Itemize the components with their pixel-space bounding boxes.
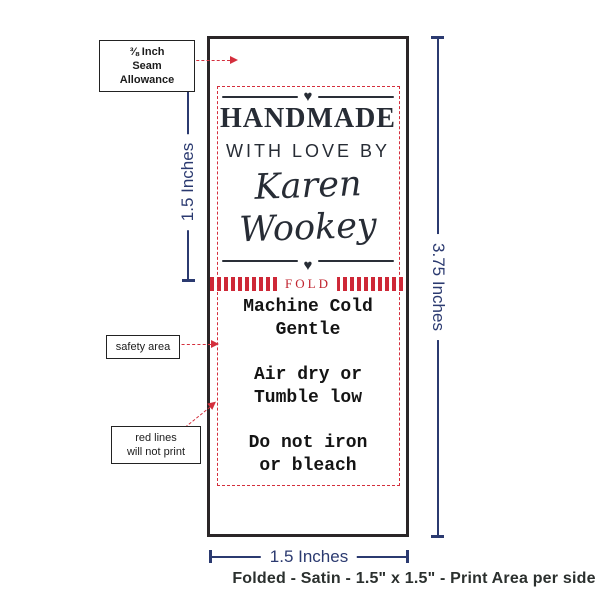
seam-allowance-note: ⅜ Inch Seam Allowance	[99, 40, 195, 92]
red-lines-line1: red lines	[117, 431, 195, 445]
label-mockup-diagram: FOLD ♥ HANDMADE WITH LOVE BY Karen Wooke…	[0, 0, 600, 600]
left-dimension-label: 1.5 Inches	[176, 134, 200, 230]
bottom-dimension-cap-right	[406, 550, 409, 563]
safety-area-label: safety area	[112, 340, 174, 354]
arrowhead-icon	[211, 340, 219, 348]
fold-label: FOLD	[279, 275, 337, 293]
bottom-dimension-cap-left	[209, 550, 212, 563]
product-caption: Folded - Satin - 1.5" x 1.5" - Print Are…	[228, 570, 600, 588]
right-dimension-cap-bottom	[431, 535, 444, 538]
red-lines-line2: will not print	[117, 445, 195, 459]
right-dimension-cap-top	[431, 36, 444, 39]
arrowhead-icon	[230, 56, 238, 64]
seam-allowance-line1: ⅜ Inch	[105, 45, 189, 59]
seam-allowance-line2: Seam Allowance	[105, 59, 189, 87]
red-lines-note: red lines will not print	[111, 426, 201, 464]
bottom-dimension-label: 1.5 Inches	[261, 545, 357, 569]
left-dimension-cap-bottom	[182, 279, 195, 282]
right-dimension-label: 3.75 Inches	[426, 234, 450, 340]
safety-area-note: safety area	[106, 335, 180, 359]
